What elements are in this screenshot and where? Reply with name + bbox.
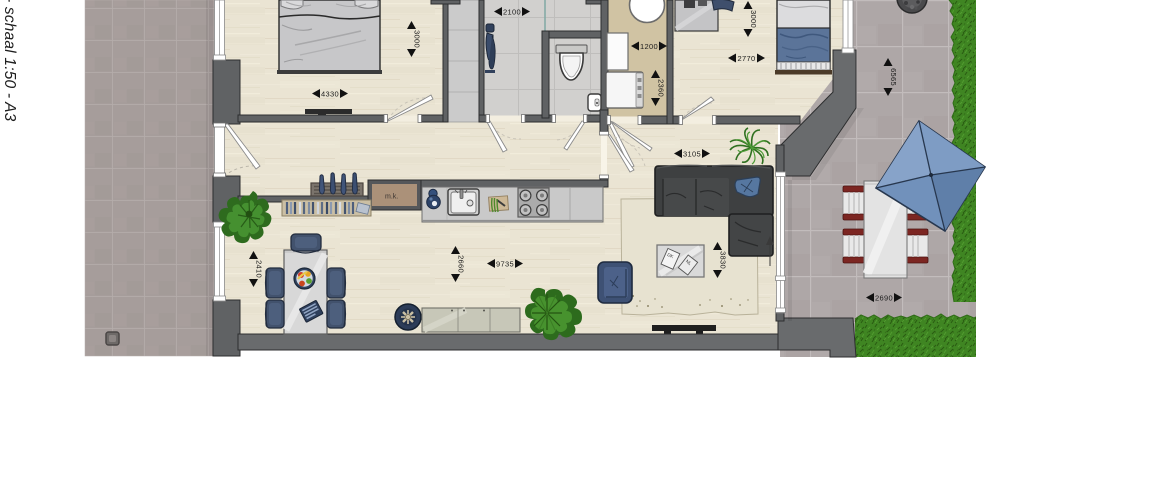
- svg-text:3000: 3000: [749, 10, 758, 28]
- svg-text:2100: 2100: [503, 8, 521, 17]
- svg-text:6565: 6565: [889, 68, 898, 86]
- svg-text:1200: 1200: [640, 42, 658, 51]
- svg-text:2660: 2660: [457, 255, 466, 273]
- svg-text:2770: 2770: [738, 54, 756, 63]
- svg-text:2410: 2410: [255, 260, 264, 278]
- svg-text:9735: 9735: [496, 260, 514, 269]
- svg-text:3000: 3000: [413, 30, 422, 48]
- svg-text:3830: 3830: [719, 251, 728, 269]
- svg-text:4330: 4330: [321, 90, 339, 99]
- svg-text:2690: 2690: [875, 294, 893, 303]
- svg-text:m.k.: m.k.: [385, 194, 398, 201]
- svg-text:2360: 2360: [657, 79, 666, 97]
- svg-text:- schaal 1:50 - A3: - schaal 1:50 - A3: [1, 0, 18, 122]
- svg-text:3105: 3105: [683, 150, 701, 159]
